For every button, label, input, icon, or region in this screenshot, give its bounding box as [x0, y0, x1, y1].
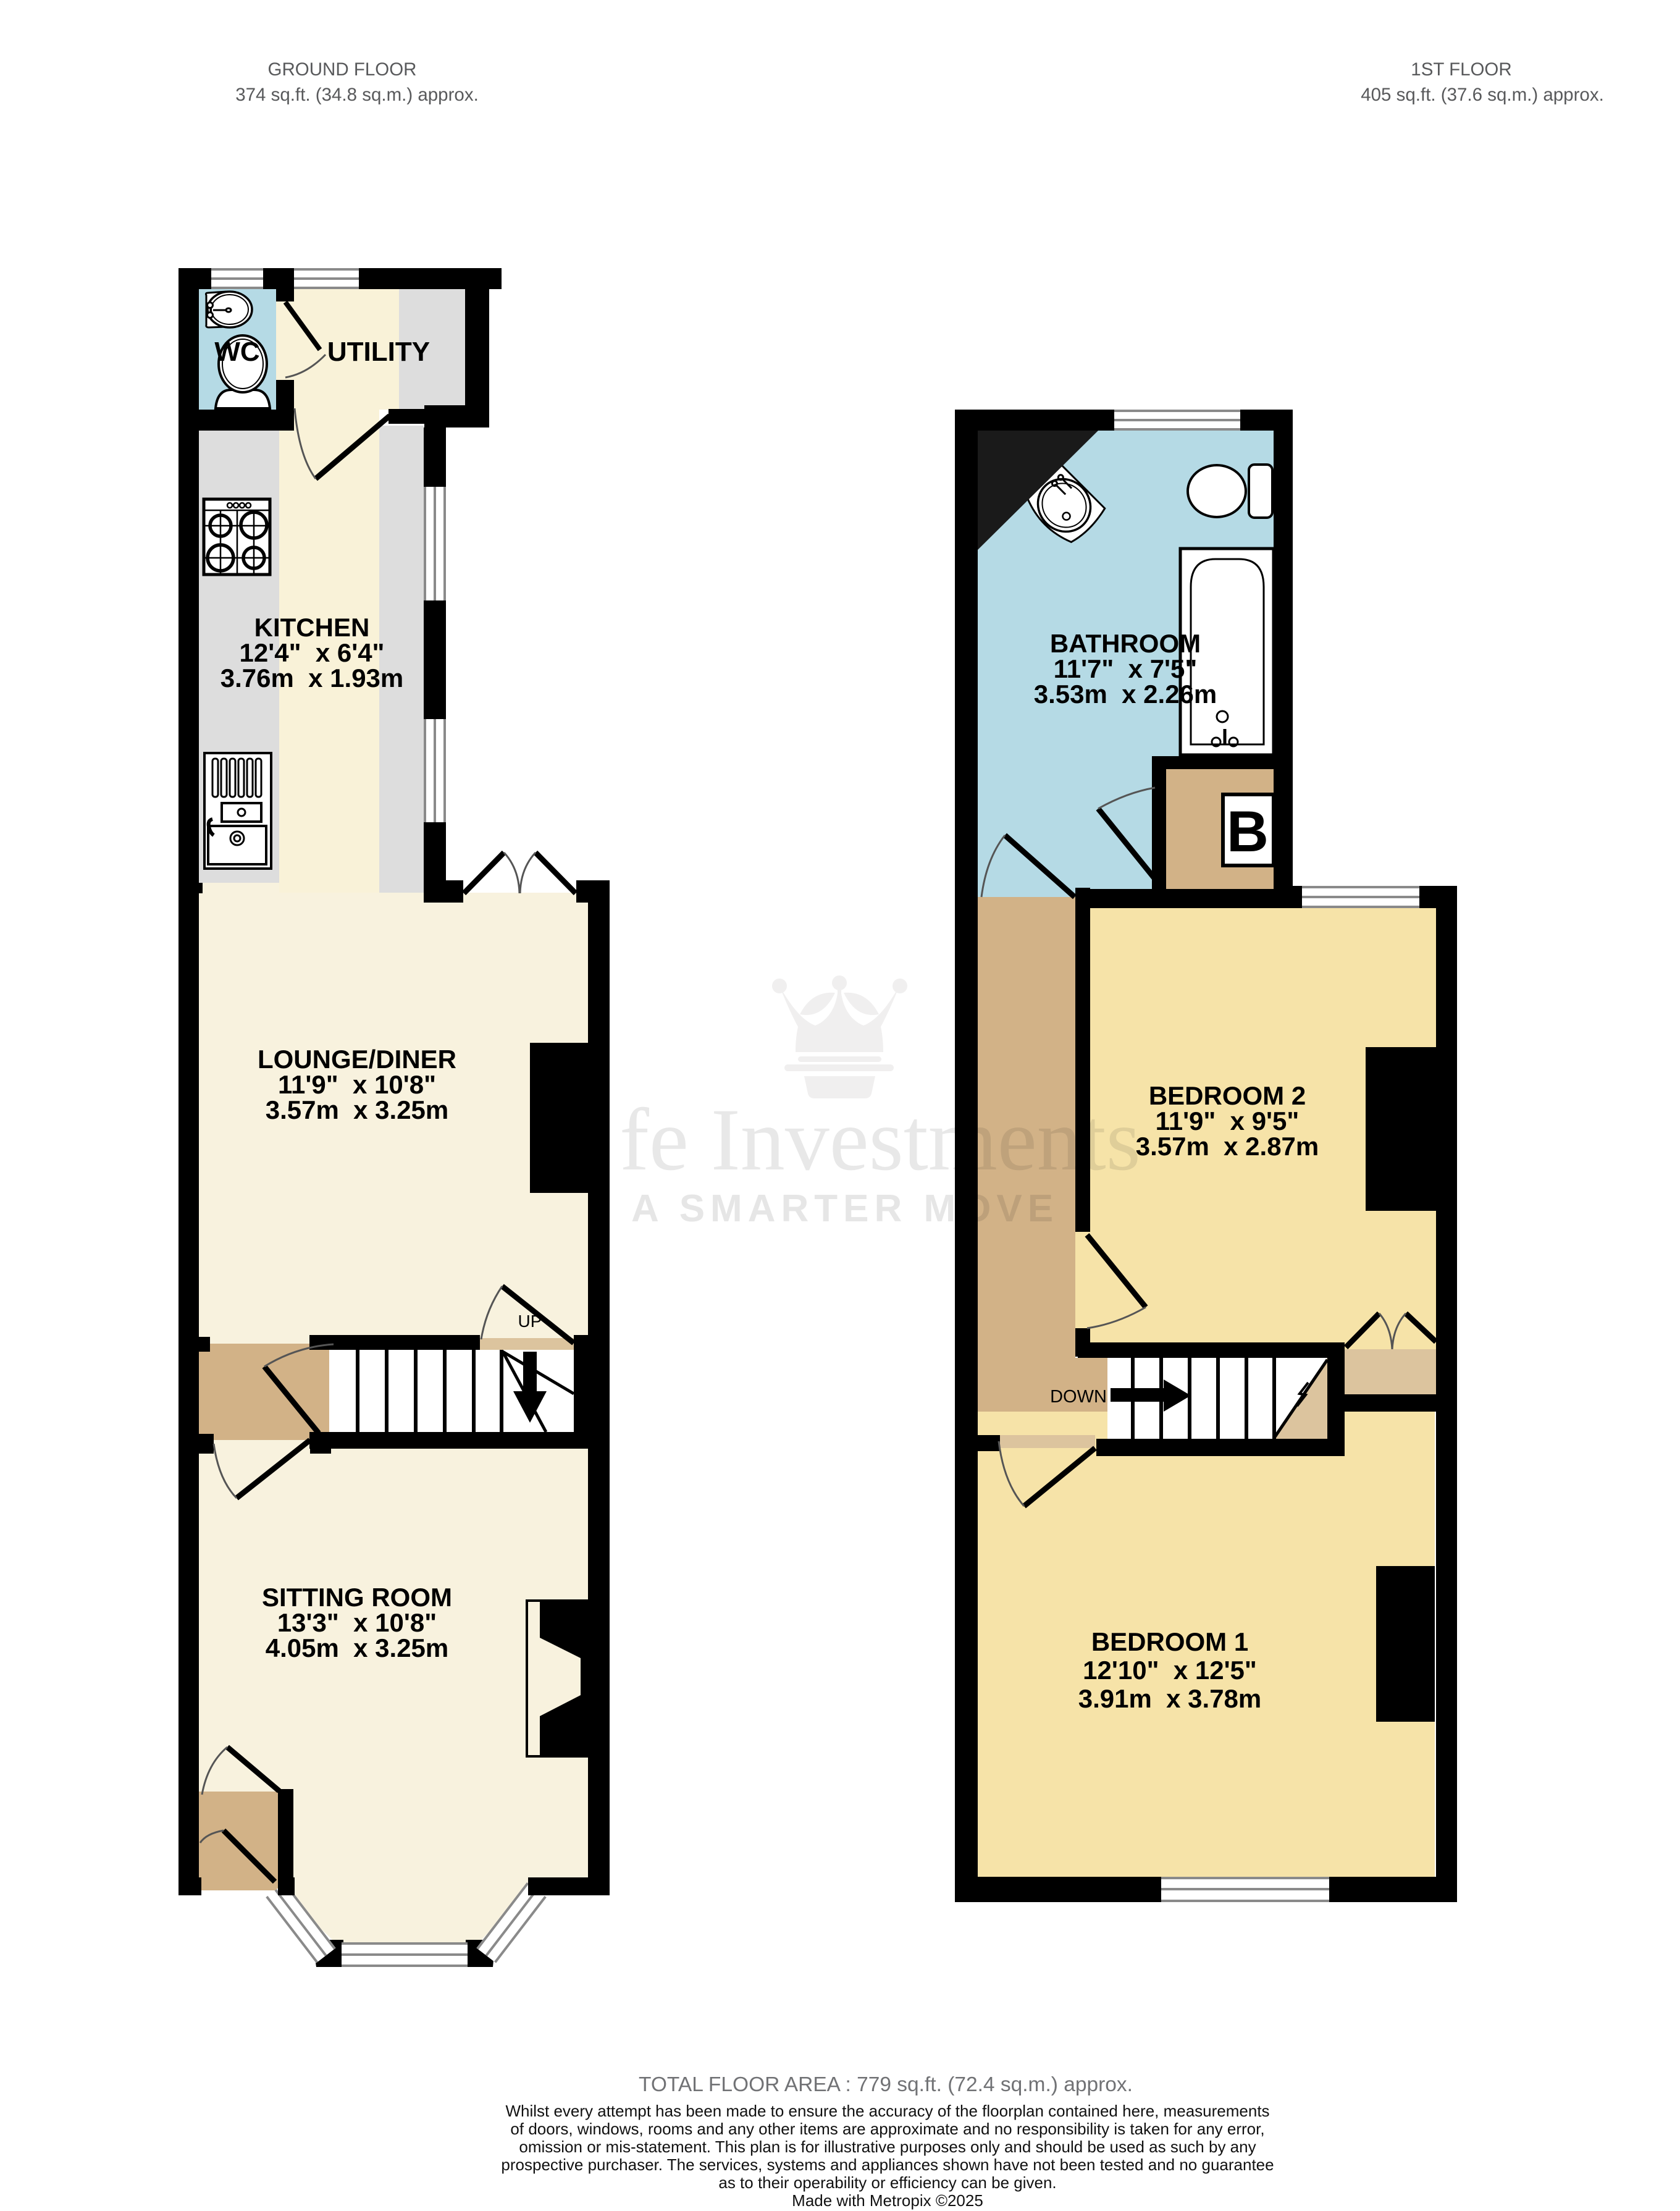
svg-text:of doors, windows, rooms and a: of doors, windows, rooms and any other i…	[510, 2120, 1264, 2138]
svg-text:WC: WC	[214, 337, 259, 367]
svg-text:BEDROOM 1: BEDROOM 1	[1091, 1627, 1248, 1656]
svg-text:3.91m x 3.78m: 3.91m x 3.78m	[1078, 1684, 1262, 1713]
svg-text:SITTING ROOM: SITTING ROOM	[262, 1583, 452, 1612]
svg-text:A SMARTER MOVE: A SMARTER MOVE	[631, 1187, 1059, 1230]
svg-text:374 sq.ft. (34.8 sq.m.) approx: 374 sq.ft. (34.8 sq.m.) approx.	[235, 85, 479, 105]
svg-text:1ST FLOOR: 1ST FLOOR	[1411, 59, 1511, 80]
svg-text:11'9" x 10'8": 11'9" x 10'8"	[278, 1070, 436, 1099]
svg-text:3.76m x 1.93m: 3.76m x 1.93m	[220, 663, 404, 693]
svg-text:11'9" x 9'5": 11'9" x 9'5"	[1156, 1106, 1300, 1135]
svg-text:Made with Metropix ©2025: Made with Metropix ©2025	[792, 2191, 983, 2210]
svg-text:11'7" x 7'5": 11'7" x 7'5"	[1054, 654, 1198, 683]
svg-text:3.53m x 2.26m: 3.53m x 2.26m	[1034, 680, 1217, 709]
svg-text:omission or mis-statement. Thi: omission or mis-statement. This plan is …	[519, 2137, 1256, 2156]
svg-text:B: B	[1227, 799, 1269, 864]
svg-text:Whilst every attempt has been: Whilst every attempt has been made to en…	[505, 2102, 1269, 2120]
svg-text:BEDROOM 2: BEDROOM 2	[1149, 1081, 1306, 1110]
svg-text:DOWN: DOWN	[1050, 1387, 1107, 1407]
svg-text:UTILITY: UTILITY	[327, 337, 430, 367]
svg-text:12'10" x 12'5": 12'10" x 12'5"	[1083, 1656, 1257, 1685]
svg-text:12'4" x 6'4": 12'4" x 6'4"	[240, 638, 385, 667]
svg-text:GROUND FLOOR: GROUND FLOOR	[268, 59, 417, 80]
svg-text:BATHROOM: BATHROOM	[1050, 629, 1201, 658]
svg-text:TOTAL FLOOR AREA : 779 sq.ft.: TOTAL FLOOR AREA : 779 sq.ft. (72.4 sq.m…	[639, 2073, 1133, 2096]
svg-text:fe Investments: fe Investments	[619, 1091, 1141, 1189]
svg-text:3.57m x 3.25m: 3.57m x 3.25m	[266, 1095, 449, 1124]
svg-text:13'3" x 10'8": 13'3" x 10'8"	[277, 1608, 437, 1637]
svg-text:prospective purchaser. The ser: prospective purchaser. The services, sys…	[501, 2155, 1274, 2174]
svg-text:UP: UP	[518, 1312, 542, 1331]
svg-text:as to their operability or eff: as to their operability or efficiency ca…	[718, 2173, 1056, 2192]
svg-text:LOUNGE/DINER: LOUNGE/DINER	[258, 1045, 456, 1074]
svg-text:405 sq.ft. (37.6 sq.m.) approx: 405 sq.ft. (37.6 sq.m.) approx.	[1361, 85, 1604, 105]
svg-text:KITCHEN: KITCHEN	[254, 613, 370, 642]
svg-text:3.57m x 2.87m: 3.57m x 2.87m	[1136, 1132, 1319, 1161]
svg-text:4.05m x 3.25m: 4.05m x 3.25m	[266, 1633, 449, 1662]
